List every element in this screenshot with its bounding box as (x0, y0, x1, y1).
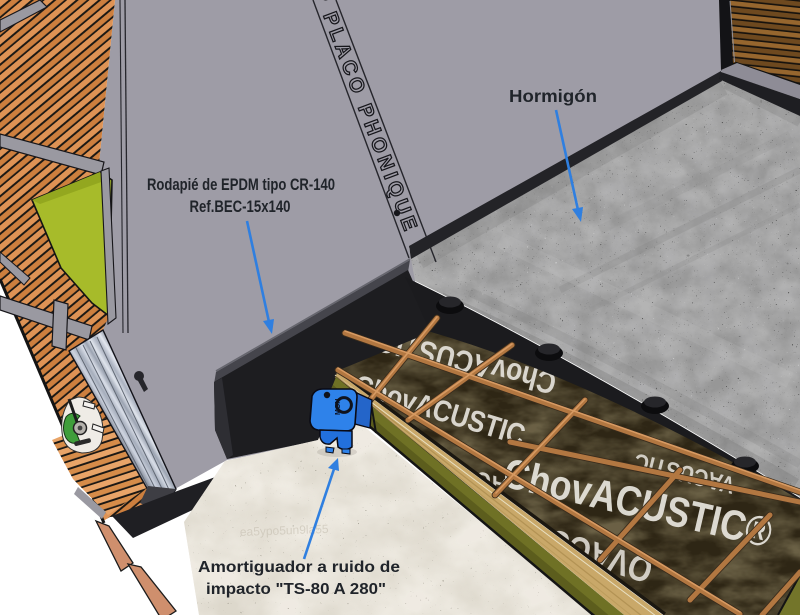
svg-text:Rodapié de EPDM tipo CR-140: Rodapié de EPDM tipo CR-140 (147, 176, 335, 194)
svg-text:Hormigón: Hormigón (509, 86, 597, 106)
svg-text:impacto "TS-80 A 280": impacto "TS-80 A 280" (206, 581, 386, 598)
svg-text:Amortiguador a ruido de: Amortiguador a ruido de (198, 559, 400, 576)
svg-text:Ref.BEC-15x140: Ref.BEC-15x140 (190, 198, 291, 216)
svg-text:MON: MON (335, 399, 342, 415)
